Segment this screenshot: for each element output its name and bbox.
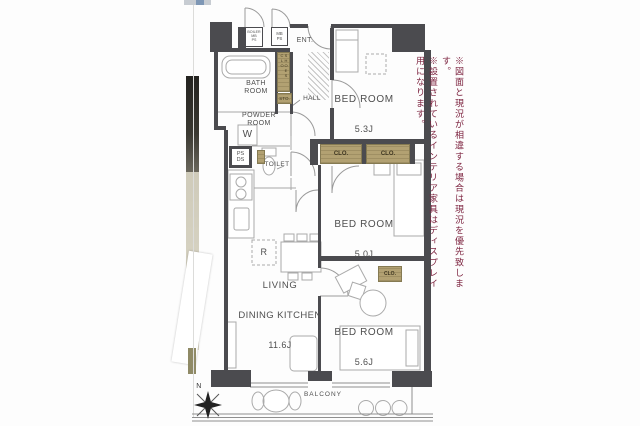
wall: [318, 165, 321, 268]
ldk-label: LIVING DINING KITCHEN 11.6J: [238, 263, 322, 369]
wall: [331, 24, 392, 28]
bedroom1-size: 5.3J: [328, 124, 400, 134]
ldk-name-line1: LIVING: [238, 281, 322, 292]
bathtub: [222, 56, 270, 78]
storage-box: STO.: [277, 93, 292, 104]
bedroom2-name: BED ROOM: [328, 219, 400, 231]
wall: [224, 130, 228, 372]
bedroom3-label: BED ROOM 5.6J: [328, 309, 400, 386]
kitchen-sink: [234, 208, 249, 230]
bedroom3-size: 5.6J: [328, 357, 400, 367]
wall: [310, 139, 318, 165]
meterbox-label: MB PS: [276, 32, 282, 41]
bedroom1-label: BED ROOM 5.3J: [328, 76, 400, 153]
boiler-box: BOILER MB PS: [245, 27, 263, 47]
wall: [214, 52, 218, 126]
bedroom2-size: 5.0J: [328, 249, 400, 259]
pillar-top-right: [392, 24, 425, 52]
psds-label: PS DS: [237, 151, 245, 163]
washer-label: W: [238, 129, 257, 141]
wall: [290, 52, 293, 114]
toilet-label: TOILET: [262, 161, 292, 168]
label-leader-lines: [277, 100, 300, 169]
powder-room-label: POWDER ROOM: [240, 112, 278, 128]
ldk-size: 11.6J: [238, 340, 322, 350]
planter: [359, 401, 374, 416]
bedroom3-name: BED ROOM: [328, 327, 400, 339]
boiler-label: BOILER MB PS: [247, 31, 260, 43]
fridge-label: R: [252, 247, 276, 257]
pillar-bottom-left: [211, 370, 251, 387]
storage-label: STO.: [279, 96, 289, 101]
compass: [194, 391, 222, 419]
meterbox-ps: MB PS: [271, 27, 288, 46]
balcony-label: BALCONY: [298, 391, 348, 398]
bedroom2-label: BED ROOM 5.0J: [328, 201, 400, 278]
entrance-label: ENT.: [293, 37, 317, 45]
balcony-table: [263, 390, 289, 412]
bathroom-label: BATH ROOM: [238, 80, 274, 96]
entrance-floor-hatch: [308, 52, 329, 100]
hall-label: HALL: [299, 95, 325, 102]
disclaimer-line2: ※設置されているインテリア家具はディスプレイ用になります。: [413, 56, 439, 296]
disclaimer-notes: ※図面と現況が相違する場合は現況を優先致します。 ※設置されているインテリア家具…: [413, 56, 465, 296]
wall: [330, 28, 334, 80]
ldk-name-line2: DINING KITCHEN: [238, 311, 322, 322]
bed-1: [336, 30, 358, 72]
wall: [290, 24, 308, 28]
tv-board: [227, 322, 236, 368]
disclaimer-line1: ※図面と現況が相違する場合は現況を優先致します。: [439, 56, 465, 296]
psds-box: PS DS: [229, 146, 252, 168]
compass-north-label: N: [193, 383, 205, 391]
bedroom1-name: BED ROOM: [328, 94, 400, 106]
shoes-closet-label: SHOES CLO: [280, 53, 288, 91]
shoes-closet: SHOES CLO: [277, 52, 290, 92]
